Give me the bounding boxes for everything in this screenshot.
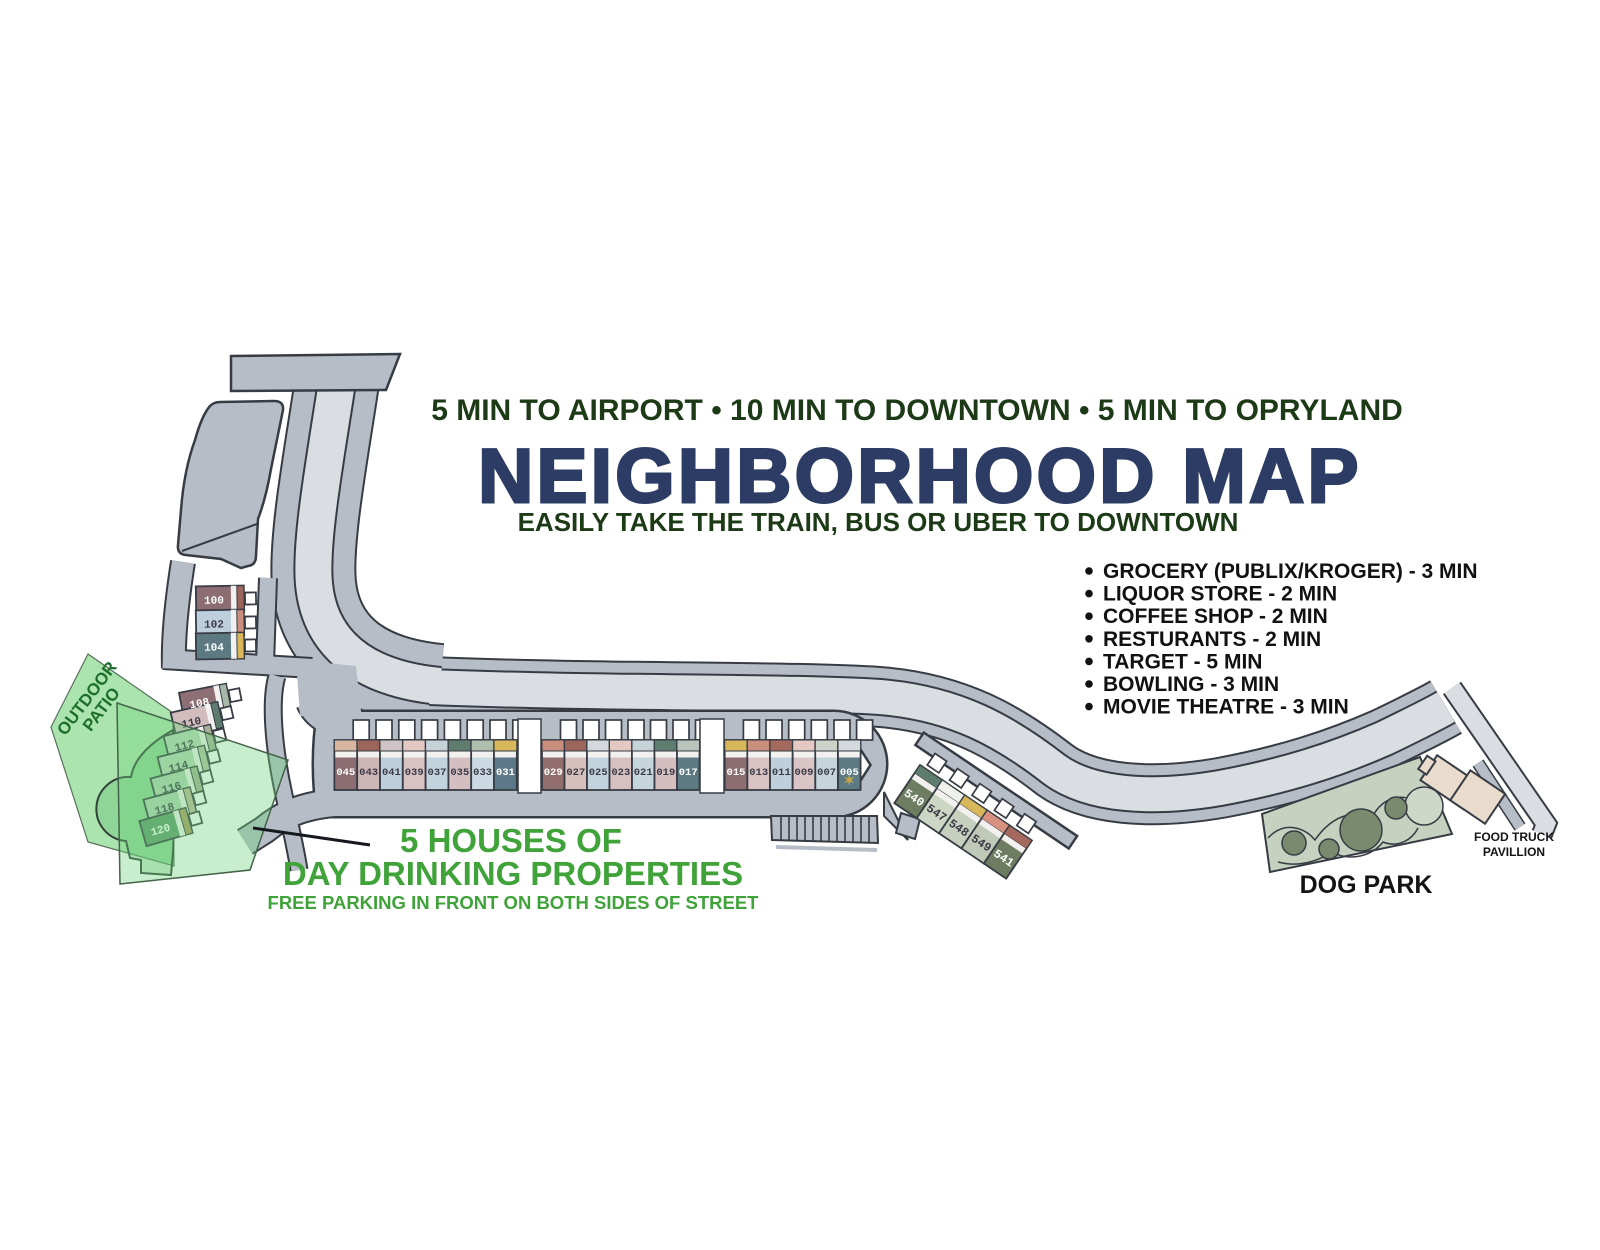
svg-text:BOWLING - 3 MIN: BOWLING - 3 MIN bbox=[1103, 673, 1279, 696]
svg-text:039: 039 bbox=[405, 767, 424, 779]
svg-text:FOOD TRUCK: FOOD TRUCK bbox=[1474, 830, 1554, 844]
svg-text:DAY DRINKING PROPERTIES: DAY DRINKING PROPERTIES bbox=[283, 855, 743, 892]
svg-text:TARGET - 5 MIN: TARGET - 5 MIN bbox=[1103, 650, 1262, 673]
svg-text:104: 104 bbox=[204, 642, 224, 654]
svg-text:100: 100 bbox=[204, 595, 224, 607]
svg-text:EASILY TAKE THE TRAIN, BUS OR: EASILY TAKE THE TRAIN, BUS OR UBER TO DO… bbox=[518, 507, 1239, 537]
svg-text:045: 045 bbox=[336, 767, 355, 779]
svg-text:029: 029 bbox=[544, 767, 563, 779]
svg-text:RESTURANTS - 2 MIN: RESTURANTS - 2 MIN bbox=[1103, 628, 1321, 651]
svg-text:023: 023 bbox=[611, 767, 630, 779]
svg-text:043: 043 bbox=[359, 767, 378, 779]
svg-text:DOG PARK: DOG PARK bbox=[1300, 871, 1433, 899]
svg-text:041: 041 bbox=[382, 767, 401, 779]
svg-text:015: 015 bbox=[727, 767, 746, 779]
svg-text:5 HOUSES OF: 5 HOUSES OF bbox=[400, 822, 622, 859]
svg-text:035: 035 bbox=[450, 767, 469, 779]
svg-text:031: 031 bbox=[496, 767, 515, 779]
svg-text:102: 102 bbox=[204, 619, 224, 631]
svg-text:019: 019 bbox=[656, 767, 675, 779]
svg-text:037: 037 bbox=[428, 767, 447, 779]
svg-text:MOVIE THEATRE - 3 MIN: MOVIE THEATRE - 3 MIN bbox=[1103, 696, 1349, 719]
svg-text:021: 021 bbox=[634, 767, 653, 779]
svg-text:017: 017 bbox=[679, 767, 698, 779]
svg-text:025: 025 bbox=[589, 767, 608, 779]
svg-text:009: 009 bbox=[795, 767, 814, 779]
svg-text:007: 007 bbox=[817, 767, 836, 779]
svg-text:GROCERY (PUBLIX/KROGER) - 3 MI: GROCERY (PUBLIX/KROGER) - 3 MIN bbox=[1103, 560, 1478, 583]
svg-text:LIQUOR STORE - 2 MIN: LIQUOR STORE - 2 MIN bbox=[1103, 583, 1337, 606]
svg-text:COFFEE SHOP - 2 MIN: COFFEE SHOP - 2 MIN bbox=[1103, 605, 1328, 628]
svg-text:PAVILLION: PAVILLION bbox=[1483, 845, 1545, 859]
svg-text:FREE PARKING IN FRONT ON BOTH: FREE PARKING IN FRONT ON BOTH SIDES OF S… bbox=[268, 892, 760, 913]
svg-text:5 MIN TO AIRPORT • 10 MIN TO D: 5 MIN TO AIRPORT • 10 MIN TO DOWNTOWN • … bbox=[431, 394, 1403, 427]
svg-text:027: 027 bbox=[566, 767, 585, 779]
svg-text:011: 011 bbox=[772, 767, 791, 779]
svg-text:013: 013 bbox=[749, 767, 768, 779]
svg-text:✶: ✶ bbox=[843, 772, 855, 788]
svg-text:033: 033 bbox=[473, 767, 492, 779]
